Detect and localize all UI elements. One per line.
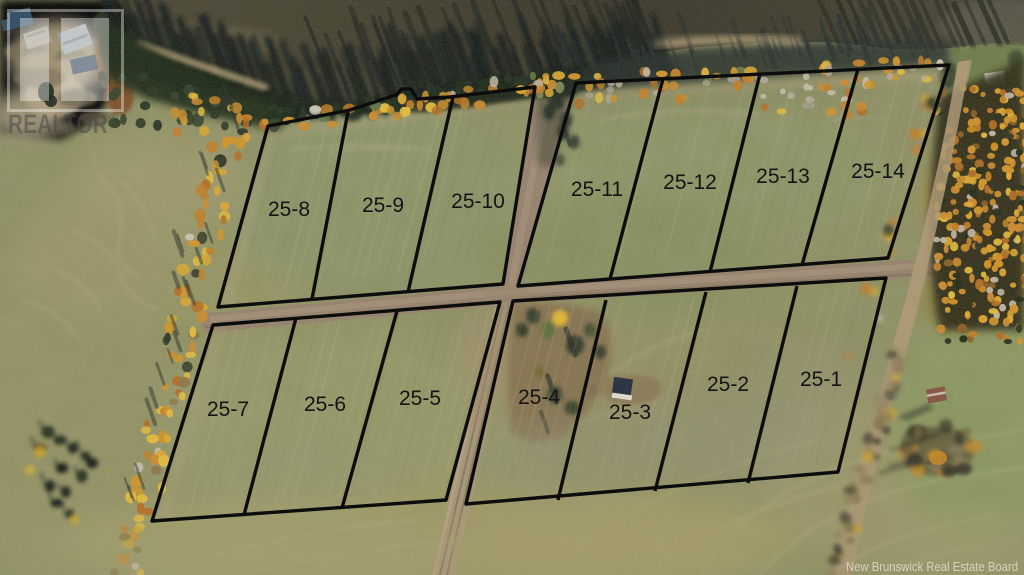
svg-text:25-12: 25-12 xyxy=(663,171,717,194)
svg-text:25-7: 25-7 xyxy=(207,398,249,421)
svg-text:25-10: 25-10 xyxy=(451,190,505,213)
svg-text:New Brunswick Real Estate Boar: New Brunswick Real Estate Board xyxy=(846,559,1018,574)
svg-text:REALTOR: REALTOR xyxy=(8,109,108,139)
svg-text:25-8: 25-8 xyxy=(268,198,310,221)
svg-text:25-9: 25-9 xyxy=(362,194,404,217)
svg-text:25-4: 25-4 xyxy=(518,386,560,409)
svg-text:25-3: 25-3 xyxy=(609,401,651,424)
svg-text:25-1: 25-1 xyxy=(800,368,842,391)
svg-text:25-14: 25-14 xyxy=(851,160,905,183)
svg-text:25-5: 25-5 xyxy=(399,387,441,410)
svg-text:®: ® xyxy=(110,112,118,124)
svg-text:25-6: 25-6 xyxy=(304,393,346,416)
svg-text:25-13: 25-13 xyxy=(756,165,810,188)
svg-text:25-11: 25-11 xyxy=(571,178,623,201)
svg-text:25-2: 25-2 xyxy=(707,373,749,396)
